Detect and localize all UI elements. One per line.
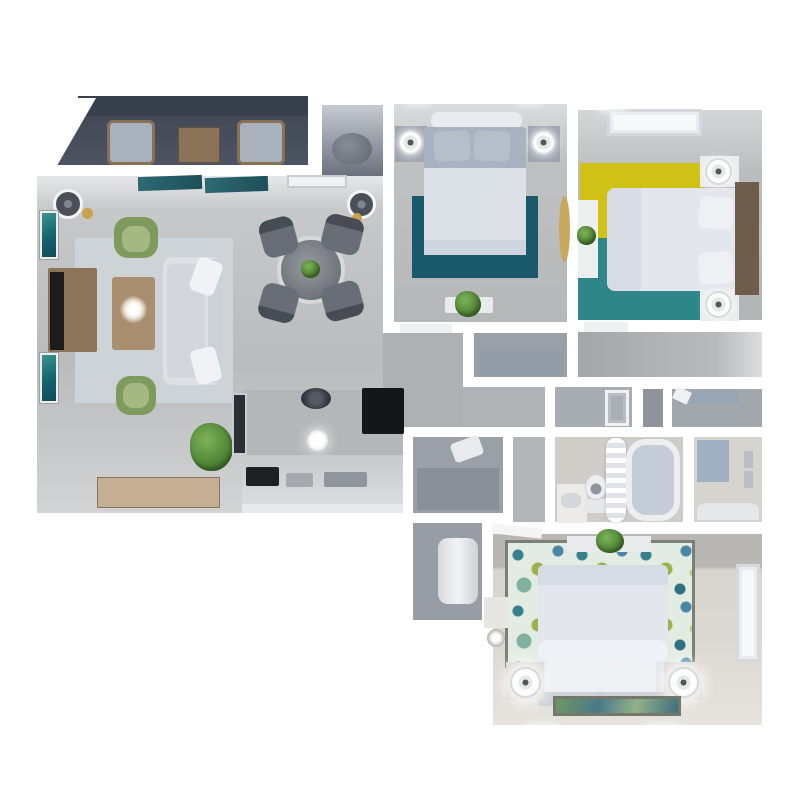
master-window: [736, 564, 760, 662]
skylight: [607, 109, 702, 136]
bedroom2-door-threshold: [584, 322, 628, 332]
kitchen-mirror: [232, 393, 247, 455]
light-bar-4: [527, 727, 557, 733]
bedroom1-wall-mirror: [559, 196, 570, 262]
bed2-headboard: [735, 182, 759, 295]
living-window-2: [205, 176, 268, 193]
balcony-perspective-wedge: [50, 98, 96, 165]
living-window-frame: [287, 175, 347, 188]
light-bar-2: [519, 95, 541, 101]
wall-art-1: [40, 211, 58, 259]
light-bar-5: [648, 727, 678, 733]
floor-plan: [0, 0, 800, 800]
master-foot-art: [553, 696, 681, 716]
bedroom1-door-threshold: [400, 324, 452, 333]
light-bar-3: [600, 102, 624, 108]
master-door-panel: [492, 523, 543, 538]
layer-fixtures: [0, 0, 800, 800]
wall-art-2: [40, 353, 58, 403]
living-window-1: [138, 175, 202, 191]
light-bar-1: [408, 95, 430, 101]
